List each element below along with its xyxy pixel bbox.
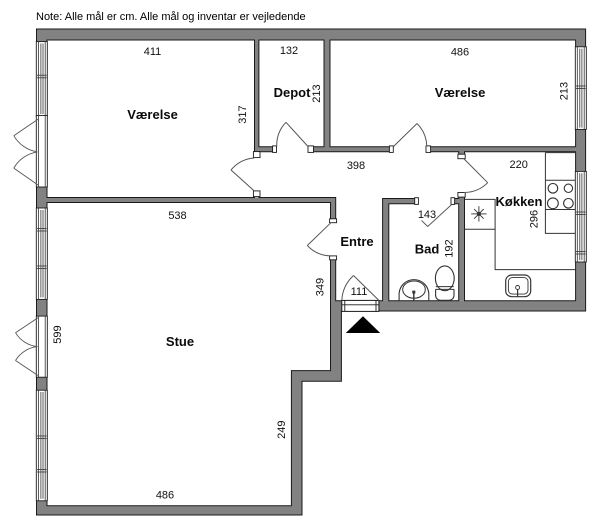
svg-text:132: 132 [280,45,298,57]
svg-text:599: 599 [52,325,64,343]
svg-text:Note: Alle mål er cm. Alle mål: Note: Alle mål er cm. Alle mål og invent… [36,11,306,23]
svg-text:Stue: Stue [166,334,194,349]
svg-text:Depot: Depot [274,85,312,100]
svg-text:296: 296 [529,210,541,228]
svg-text:317: 317 [237,105,249,123]
svg-text:Entre: Entre [340,234,373,249]
svg-text:411: 411 [144,46,162,58]
svg-text:213: 213 [559,82,571,100]
svg-text:486: 486 [451,47,469,59]
svg-text:Værelse: Værelse [127,107,178,122]
svg-text:Bad: Bad [415,242,440,257]
svg-text:Køkken: Køkken [496,194,543,209]
svg-text:486: 486 [156,490,174,502]
svg-text:349: 349 [315,278,327,296]
svg-text:Værelse: Værelse [435,85,486,100]
svg-text:143: 143 [418,209,436,221]
svg-text:538: 538 [168,210,186,222]
svg-text:111: 111 [351,286,368,298]
svg-text:398: 398 [347,160,365,172]
svg-text:220: 220 [510,159,528,171]
svg-text:213: 213 [311,84,323,102]
svg-text:192: 192 [444,239,456,257]
svg-text:249: 249 [276,421,288,439]
